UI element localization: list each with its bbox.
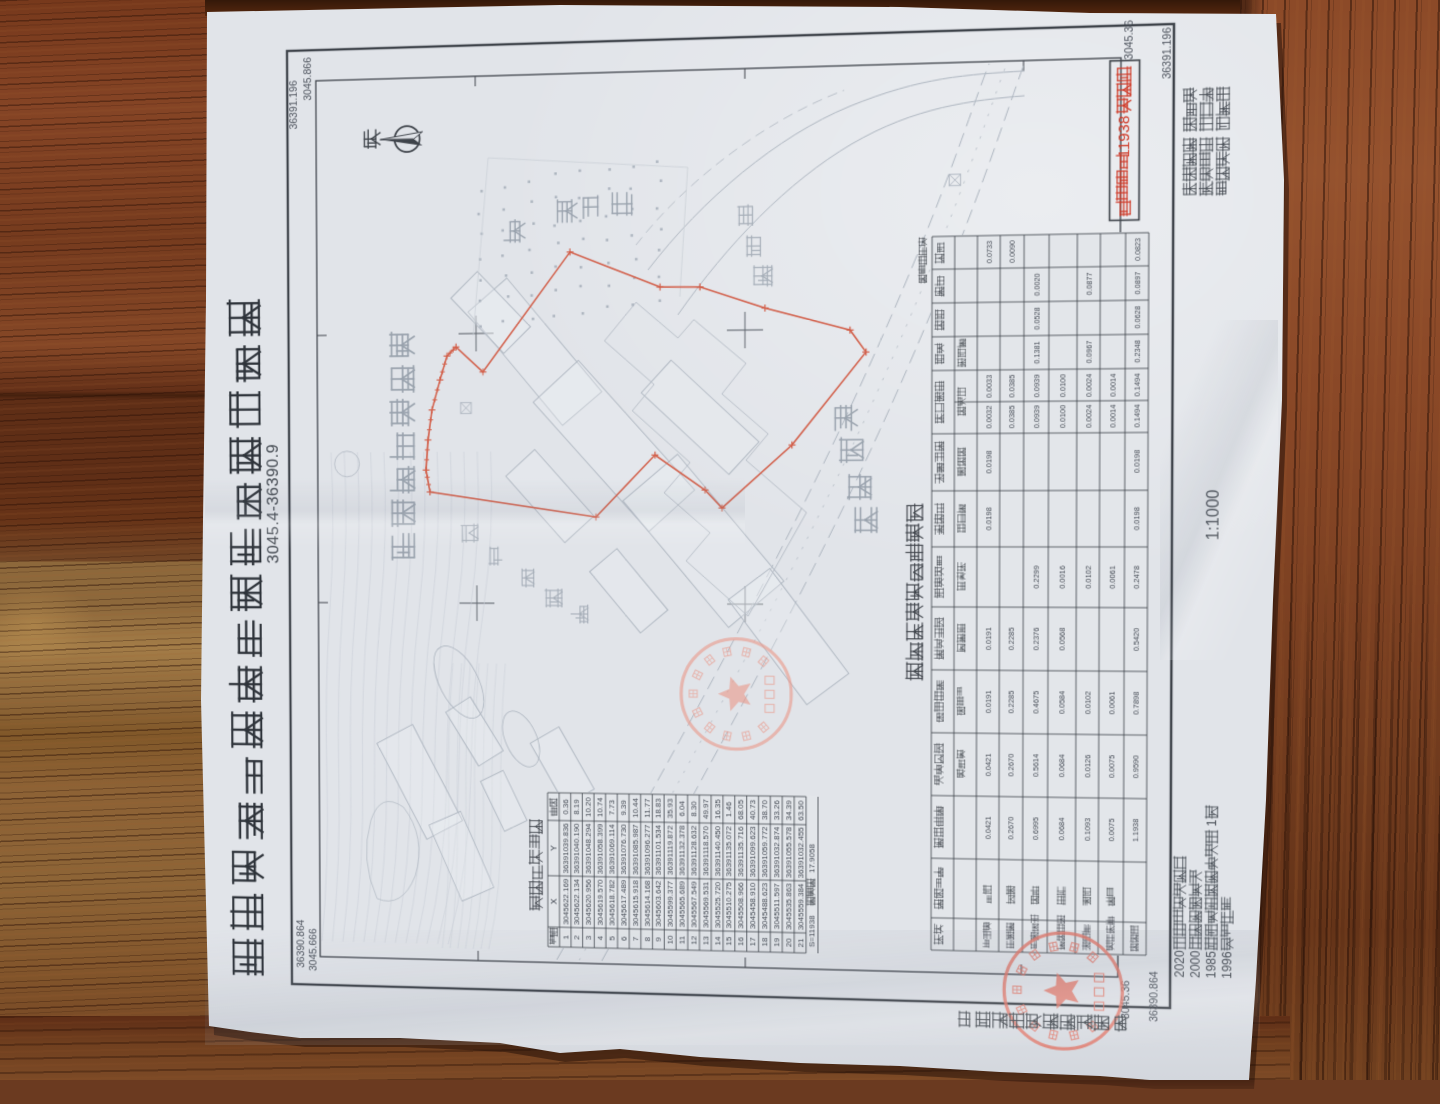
svg-text:1.46: 1.46 [724, 802, 734, 818]
svg-text:0.0877: 0.0877 [1086, 272, 1094, 295]
svg-text:36391119.872: 36391119.872 [665, 825, 675, 875]
svg-text:0.5614: 0.5614 [1033, 754, 1041, 777]
svg-text:0.0102: 0.0102 [1085, 691, 1093, 714]
svg-text:0.6995: 0.6995 [1033, 817, 1041, 840]
svg-text:9.39: 9.39 [619, 800, 628, 816]
svg-text:1.1938: 1.1938 [1133, 819, 1141, 842]
svg-text:0.0191: 0.0191 [985, 690, 993, 713]
svg-text:36391099.623: 36391099.623 [748, 826, 758, 877]
svg-text:0.0024: 0.0024 [1086, 374, 1094, 398]
svg-text:3045622.169: 3045622.169 [561, 879, 570, 925]
svg-text:0.2299: 0.2299 [1033, 565, 1041, 588]
svg-text:36391058.399: 36391058.399 [595, 824, 605, 875]
svg-text:36391101.534: 36391101.534 [654, 825, 664, 875]
svg-text:0.0684: 0.0684 [1059, 754, 1067, 777]
svg-text:0.1381: 0.1381 [1034, 341, 1042, 364]
svg-text:0.0102: 0.0102 [1085, 565, 1093, 588]
svg-text:0.0939: 0.0939 [1034, 374, 1042, 397]
svg-text:11.77: 11.77 [642, 798, 652, 817]
svg-text:38.70: 38.70 [760, 800, 770, 820]
svg-text:0.0198: 0.0198 [986, 507, 994, 530]
svg-text:0.0126: 0.0126 [1085, 754, 1093, 777]
svg-text:0.0198: 0.0198 [1134, 450, 1142, 474]
svg-text:3045510.275: 3045510.275 [724, 882, 734, 929]
svg-text:X: X [549, 898, 559, 905]
svg-text:36391096.277: 36391096.277 [642, 824, 652, 875]
svg-text:0.2348: 0.2348 [1134, 340, 1142, 363]
svg-text:3045565.689: 3045565.689 [677, 881, 687, 928]
svg-text:36391055.578: 36391055.578 [784, 827, 794, 878]
svg-text:0.0198: 0.0198 [986, 450, 994, 473]
svg-text:36391069.114: 36391069.114 [607, 824, 617, 874]
svg-text:33.26: 33.26 [772, 800, 782, 820]
svg-text:11938: 11938 [1115, 115, 1133, 158]
svg-text:3045567.549: 3045567.549 [689, 881, 699, 928]
svg-text:34.39: 34.39 [784, 800, 794, 820]
svg-text:0.2376: 0.2376 [1033, 627, 1041, 650]
svg-text:0.0421: 0.0421 [985, 816, 993, 839]
svg-text:0.0016: 0.0016 [1060, 565, 1068, 588]
svg-text:7.73: 7.73 [607, 800, 616, 816]
svg-text:36391039.836: 36391039.836 [560, 823, 570, 874]
svg-text:3045603.642: 3045603.642 [654, 880, 664, 927]
svg-text:0.5420: 0.5420 [1133, 628, 1141, 651]
svg-text:0.0628: 0.0628 [1134, 306, 1142, 329]
svg-text:0.0061: 0.0061 [1109, 691, 1117, 714]
svg-text:3045488.623: 3045488.623 [760, 883, 770, 930]
svg-text:40.73: 40.73 [748, 800, 758, 820]
svg-text:36391048.294: 36391048.294 [584, 823, 594, 874]
svg-text:36391085.987: 36391085.987 [630, 824, 640, 875]
svg-text:36391135.072: 36391135.072 [724, 826, 734, 877]
svg-text:36391.196: 36391.196 [289, 80, 300, 130]
svg-text:0.0014: 0.0014 [1110, 373, 1118, 397]
svg-text:36391135.716: 36391135.716 [736, 826, 746, 877]
svg-text:0.0100: 0.0100 [1060, 405, 1068, 428]
svg-text:68.05: 68.05 [736, 800, 746, 820]
svg-text:1: 1 [1206, 820, 1220, 827]
svg-text:36391032.874: 36391032.874 [772, 827, 782, 878]
svg-text:36391118.570: 36391118.570 [701, 826, 711, 876]
svg-text:0.0967: 0.0967 [1086, 340, 1094, 363]
svg-text:0.0568: 0.0568 [1060, 627, 1068, 650]
svg-text:3045559.384: 3045559.384 [795, 883, 805, 930]
svg-text:6.04: 6.04 [677, 801, 687, 817]
svg-text:3045511.597: 3045511.597 [772, 883, 782, 929]
svg-text:3045619.570: 3045619.570 [595, 879, 605, 925]
svg-text:36391059.772: 36391059.772 [760, 826, 770, 877]
svg-text:3045569.531: 3045569.531 [701, 881, 711, 928]
svg-text:35.93: 35.93 [665, 798, 675, 818]
svg-text:0.1494: 0.1494 [1134, 373, 1142, 397]
svg-text:0.0075: 0.0075 [1109, 755, 1117, 778]
svg-text:3045617.489: 3045617.489 [619, 880, 629, 926]
svg-text:0.0385: 0.0385 [1009, 374, 1017, 397]
svg-text:3045615.918: 3045615.918 [630, 880, 640, 926]
svg-text:3045535.863: 3045535.863 [784, 883, 794, 930]
svg-text:0.2670: 0.2670 [1008, 817, 1016, 840]
svg-text:0.1093: 0.1093 [1085, 818, 1093, 841]
svg-text:0.0939: 0.0939 [1034, 405, 1042, 428]
svg-text:3045614.168: 3045614.168 [642, 880, 652, 927]
svg-text:0.0020: 0.0020 [1034, 273, 1042, 296]
svg-text:0.0823: 0.0823 [1135, 238, 1143, 261]
svg-text:36391040.190: 36391040.190 [572, 823, 582, 874]
svg-text:0.0421: 0.0421 [985, 753, 993, 776]
svg-text:0.0733: 0.0733 [986, 240, 994, 263]
svg-text:36391.196: 36391.196 [1162, 27, 1175, 80]
svg-text:3045.36: 3045.36 [1124, 19, 1137, 59]
svg-text:16.35: 16.35 [712, 799, 722, 819]
svg-text:36391132.378: 36391132.378 [677, 825, 687, 875]
svg-text:3045.866: 3045.866 [303, 57, 314, 101]
svg-text:8.19: 8.19 [572, 799, 581, 815]
svg-text:0.0198: 0.0198 [1134, 507, 1142, 530]
svg-text:8.30: 8.30 [689, 801, 699, 817]
svg-text:17.9058: 17.9058 [807, 844, 817, 873]
svg-text:3045618.782: 3045618.782 [607, 880, 617, 926]
svg-text:3045622.134: 3045622.134 [572, 879, 582, 925]
svg-text:10.20: 10.20 [584, 797, 593, 817]
svg-text:0.2670: 0.2670 [1009, 753, 1017, 776]
svg-text:0.0075: 0.0075 [1109, 818, 1117, 841]
svg-text:0.2478: 0.2478 [1133, 566, 1141, 589]
svg-text:0.9590: 0.9590 [1133, 755, 1141, 778]
svg-text:3045508.966: 3045508.966 [736, 882, 746, 929]
svg-text:63.50: 63.50 [795, 800, 805, 820]
svg-text:0.0897: 0.0897 [1135, 271, 1143, 294]
svg-text:49.97: 49.97 [701, 799, 711, 819]
svg-text:Y: Y [548, 845, 558, 852]
svg-text:3045620.956: 3045620.956 [584, 879, 594, 925]
svg-text:3045458.910: 3045458.910 [748, 882, 758, 929]
svg-text:0.0033: 0.0033 [986, 375, 994, 398]
svg-text:0.0061: 0.0061 [1109, 566, 1117, 589]
svg-text:36391076.730: 36391076.730 [619, 824, 629, 875]
svg-text:10.74: 10.74 [595, 797, 604, 817]
svg-text:0.2285: 0.2285 [1009, 690, 1017, 713]
svg-text:36391128.632: 36391128.632 [689, 825, 699, 875]
svg-text:0.0528: 0.0528 [1034, 307, 1042, 330]
svg-text:36391032.455: 36391032.455 [795, 827, 805, 878]
svg-text:0.0032: 0.0032 [986, 405, 994, 428]
svg-text:18.83: 18.83 [654, 798, 664, 818]
svg-text:0.0191: 0.0191 [986, 627, 994, 650]
svg-text:0.0100: 0.0100 [1060, 374, 1068, 397]
svg-text:0.1494: 0.1494 [1134, 404, 1142, 428]
svg-text:3045599.377: 3045599.377 [666, 881, 676, 928]
svg-text:3045525.720: 3045525.720 [713, 882, 723, 929]
svg-text:0.0584: 0.0584 [1059, 691, 1067, 714]
svg-text:0.4675: 0.4675 [1033, 691, 1041, 714]
svg-text:10.44: 10.44 [630, 798, 640, 818]
svg-text:0.0090: 0.0090 [1010, 240, 1018, 263]
svg-text:0.0024: 0.0024 [1086, 405, 1094, 428]
svg-text:0.0385: 0.0385 [1009, 405, 1017, 428]
svg-text:0.0684: 0.0684 [1059, 817, 1067, 840]
svg-text:36391140.450: 36391140.450 [713, 826, 723, 877]
svg-text:0.7898: 0.7898 [1133, 691, 1141, 714]
svg-text:0.0014: 0.0014 [1110, 404, 1118, 428]
svg-text:0.2285: 0.2285 [1009, 627, 1017, 650]
svg-text:0.36: 0.36 [560, 799, 569, 815]
